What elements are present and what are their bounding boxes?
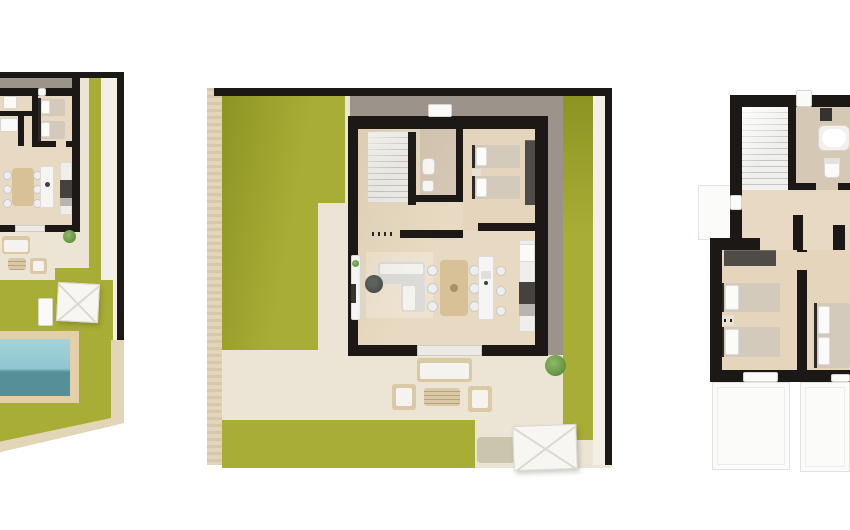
gravel-strip-top — [350, 96, 563, 117]
boundary-wall-right — [117, 72, 124, 340]
skylight — [38, 88, 46, 96]
sofa-chaise — [378, 262, 425, 284]
staircase — [742, 107, 788, 190]
swimming-pool — [0, 339, 70, 396]
pillow — [818, 306, 830, 334]
plant — [63, 230, 76, 243]
island-sink — [481, 271, 491, 279]
wall-bottom — [710, 370, 850, 382]
pillow — [818, 337, 830, 365]
single-bed — [724, 327, 780, 357]
wall-left-lower — [710, 238, 722, 382]
bathroom-wall-bottom — [416, 195, 463, 202]
stair-light — [742, 107, 788, 190]
plant-small — [352, 260, 359, 267]
hall-wall-stub — [793, 215, 803, 250]
kitchen-island — [478, 256, 494, 320]
counter-top — [60, 198, 72, 206]
boundary-wall-right — [605, 88, 612, 465]
pillow — [41, 100, 50, 114]
outdoor-sofa — [2, 236, 30, 254]
plan-ground-floor-detail — [205, 85, 620, 470]
lawn-side-strip — [89, 78, 101, 293]
sofa-cushion — [420, 363, 469, 379]
single-bed — [41, 121, 65, 139]
door-opening — [56, 141, 66, 147]
wall-top — [730, 95, 850, 107]
tv — [351, 284, 356, 303]
outdoor-sofa — [417, 358, 472, 382]
hall-wall — [32, 141, 78, 147]
wardrobe — [525, 140, 535, 205]
dining-chair — [3, 171, 12, 180]
fridge — [519, 244, 535, 262]
counter-top — [519, 304, 535, 316]
stair-light — [368, 132, 408, 202]
bar-stool — [496, 266, 506, 276]
dining-chair — [3, 199, 12, 208]
wardrobe — [724, 250, 776, 266]
boundary-wall-top — [214, 88, 612, 96]
pillow — [725, 329, 739, 355]
gravel-strip-right — [548, 117, 563, 355]
toilet — [422, 158, 435, 175]
terrace-outline — [800, 382, 850, 472]
floor-plan-triptych: Villa floor plans — three top-view 3D re… — [0, 0, 850, 530]
pillow — [476, 147, 487, 166]
door-opening — [463, 223, 478, 231]
window-gap — [743, 372, 778, 382]
lawn-bottom-strip — [222, 420, 475, 468]
terrace-inner-line — [805, 387, 845, 467]
nightstand — [472, 169, 481, 176]
chimney — [796, 90, 812, 107]
interior-wall — [18, 116, 24, 146]
dining-chair — [427, 283, 438, 294]
nightstand-decor — [724, 319, 732, 322]
outdoor-table — [8, 258, 26, 270]
sofa-cushion — [380, 264, 423, 274]
dining-chair — [3, 185, 12, 194]
bathtub-basin — [822, 129, 846, 147]
parasol — [56, 282, 100, 323]
chair-cushion — [472, 390, 488, 408]
dining-chair — [427, 265, 438, 276]
lawn-corner — [55, 268, 101, 282]
boundary-wall-left — [207, 88, 222, 465]
bathroom-fixture — [0, 118, 18, 132]
stair-wall — [788, 107, 796, 190]
hall-wall — [400, 230, 463, 238]
faucet — [484, 281, 488, 285]
island-sink — [45, 182, 50, 187]
kitchen-island — [40, 166, 54, 208]
outdoor-table — [424, 388, 460, 406]
single-bed — [475, 176, 520, 199]
skylight — [428, 104, 452, 117]
plan-ground-floor-site — [0, 72, 124, 454]
parasol — [512, 424, 578, 471]
chair-cushion — [396, 388, 412, 406]
bar-stool — [496, 286, 506, 296]
window-gap — [730, 195, 742, 210]
outdoor-armchair — [392, 384, 416, 410]
bathroom-wall-right — [456, 129, 463, 202]
staircase — [368, 132, 408, 202]
bathroom-fixture — [3, 96, 17, 109]
parasol-shadow — [477, 437, 515, 463]
terrace-inner-line — [717, 387, 785, 465]
single-bed — [724, 283, 780, 312]
sun-lounger — [38, 298, 53, 326]
single-bed — [475, 145, 520, 168]
oven — [519, 282, 535, 304]
outdoor-armchair — [30, 258, 47, 274]
sofa-cushion — [403, 286, 415, 310]
toilet-tank — [824, 158, 840, 164]
double-bed — [817, 303, 850, 368]
lawn-right-strip — [563, 96, 593, 440]
sink — [422, 180, 434, 192]
window-gap — [831, 374, 850, 382]
plan-upper-floor — [695, 58, 850, 478]
sofa-cushion — [4, 240, 28, 252]
plant — [545, 355, 566, 376]
single-bed — [41, 99, 65, 116]
dining-chair — [427, 301, 438, 312]
pillow — [41, 122, 50, 137]
radiator — [372, 232, 396, 236]
bathtub — [818, 125, 850, 151]
bath-shelf — [820, 108, 832, 121]
sofa-seat — [401, 284, 425, 312]
door-opening — [797, 252, 807, 270]
oven — [60, 180, 72, 198]
pillow — [476, 178, 487, 197]
table-centerpiece — [450, 284, 458, 292]
interior-wall — [0, 111, 32, 116]
pillow — [725, 285, 739, 310]
coffee-table — [365, 275, 383, 293]
bar-stool — [496, 306, 506, 316]
dining-table — [12, 168, 34, 206]
wall-left-upper — [730, 95, 742, 242]
sliding-door — [15, 225, 45, 232]
outdoor-armchair — [468, 386, 492, 412]
chair-cushion — [33, 261, 44, 271]
terrace-outline — [712, 382, 790, 470]
stair-wall — [408, 132, 416, 205]
sliding-door — [417, 345, 482, 356]
house-wall-right — [72, 78, 80, 232]
